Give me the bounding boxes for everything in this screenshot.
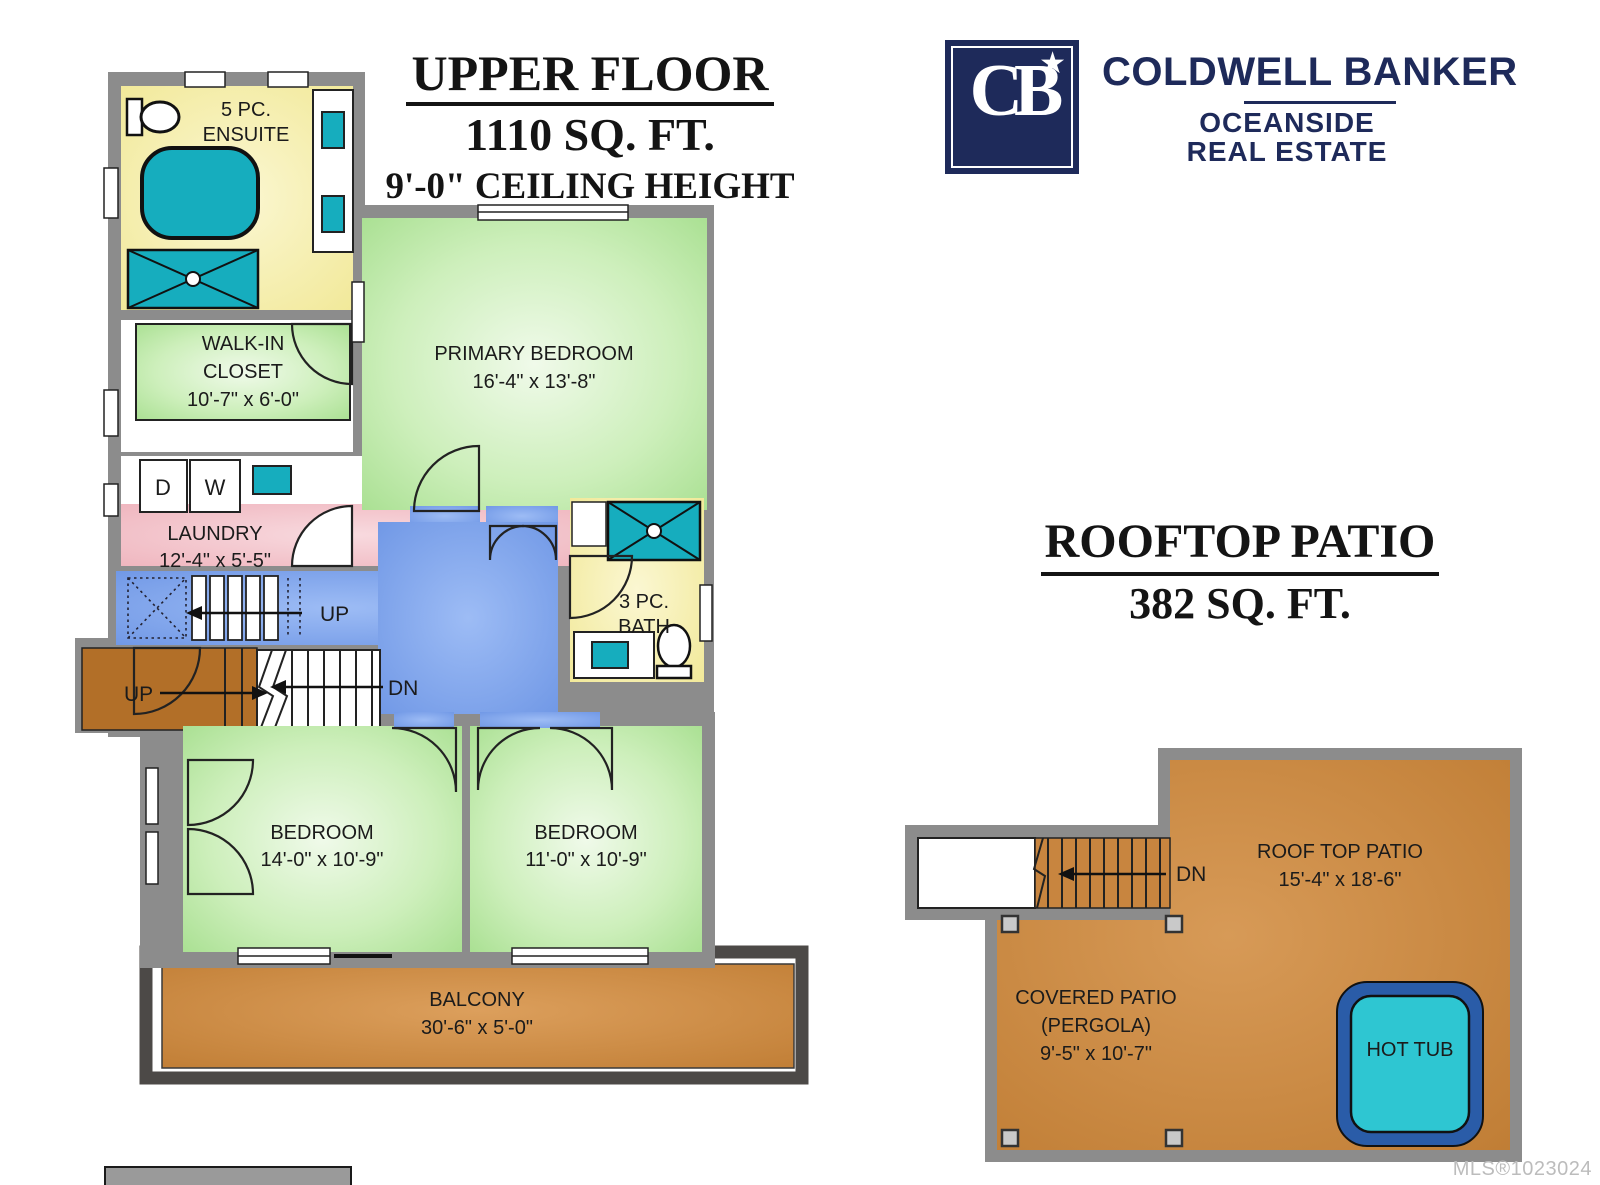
floor-plan-page: 5 PC. ENSUITE WALK-IN CLOSET 10'-7" x 6'…: [0, 0, 1600, 1185]
rooftop-patio-dim: 15'-4" x 18'-6": [1278, 869, 1401, 891]
walkin-dim: 10'-7" x 6'-0": [187, 389, 299, 411]
balcony-deck: [162, 964, 794, 1068]
stairs-up-label: UP: [320, 603, 349, 626]
covered-patio-dim: 9'-5" x 10'-7": [1040, 1043, 1152, 1065]
hot-tub: [1337, 982, 1483, 1146]
rooftop-title-block: ROOFTOP PATIO 382 SQ. FT.: [1010, 518, 1470, 626]
bath-niche: [572, 502, 606, 546]
balcony-dim: 30'-6" x 5'-0": [421, 1017, 533, 1039]
bedroom2-door-gap: [480, 712, 600, 728]
upper-floor-title-block: UPPER FLOOR 1110 SQ. FT. 9'-0" CEILING H…: [330, 48, 850, 205]
toilet-bowl-icon: [141, 102, 179, 132]
star-icon: ★: [1039, 46, 1066, 81]
ensuite-label: 5 PC.: [221, 99, 271, 121]
bedroom1-door-gap: [394, 712, 454, 728]
bath-label: 3 PC.: [619, 591, 669, 613]
bath-sink: [592, 642, 628, 668]
brand-name: COLDWELL BANKER: [1102, 50, 1562, 95]
bath-label-2: BATH: [618, 616, 670, 638]
upper-floor-area: 1110 SQ. FT.: [330, 112, 850, 158]
brand-text-block: COLDWELL BANKER OCEANSIDE REAL ESTATE: [1102, 50, 1562, 167]
balcony-label: BALCONY: [429, 989, 525, 1011]
laundry-dim: 12'-4" x 5'-5": [159, 550, 271, 572]
bath-toilet-base: [657, 666, 691, 678]
brand-divider: [1244, 101, 1396, 104]
rooftop-title-text: ROOFTOP PATIO: [1041, 518, 1440, 576]
walkin-label-2: CLOSET: [203, 361, 283, 383]
stairs-dn-label: DN: [388, 677, 418, 700]
bedroom1-label: BEDROOM: [270, 822, 373, 844]
rooftop-stairs: [918, 838, 1170, 908]
brand-sub1: OCEANSIDE: [1102, 108, 1472, 137]
bedroom2-label: BEDROOM: [534, 822, 637, 844]
rooftop-stairwell: [918, 838, 1035, 908]
shower-icon: [128, 250, 258, 308]
coldwell-banker-logo: CB ★: [945, 40, 1079, 174]
washer-label: W: [205, 475, 226, 500]
primary-bedroom-label: PRIMARY BEDROOM: [434, 343, 633, 365]
upper-floor-title: UPPER FLOOR: [406, 48, 775, 106]
stair-landing: [82, 648, 257, 730]
rooftop-patio-label: ROOF TOP PATIO: [1257, 841, 1423, 863]
dryer-label: D: [155, 475, 171, 500]
covered-patio-label: COVERED PATIO: [1015, 987, 1177, 1009]
covered-patio-label-2: (PERGOLA): [1041, 1015, 1151, 1037]
bedroom2-dim: 11'-0" x 10'-9": [525, 849, 647, 871]
rooftop-patio-plan: ROOF TOP PATIO 15'-4" x 18'-6" DN COVERE…: [905, 748, 1522, 1162]
bedroom1-dim: 14'-0" x 10'-9": [260, 849, 383, 871]
rooftop-area: 382 SQ. FT.: [1010, 582, 1470, 626]
primary-bedroom-dim: 16'-4" x 13'-8": [472, 371, 595, 393]
upper-floor-ceiling: 9'-0" CEILING HEIGHT: [330, 168, 850, 205]
bathtub-icon: [142, 148, 258, 238]
landing-up-label: UP: [124, 683, 153, 706]
lower-floor-cutoff-bar: [104, 1166, 352, 1185]
upper-floor-plan: 5 PC. ENSUITE WALK-IN CLOSET 10'-7" x 6'…: [75, 72, 802, 1078]
brand-sub2: REAL ESTATE: [1102, 137, 1472, 166]
room-bath: [570, 498, 704, 682]
hot-tub-label: HOT TUB: [1366, 1039, 1453, 1061]
laundry-sink: [253, 466, 291, 494]
laundry-label: LAUNDRY: [167, 523, 262, 545]
walkin-label: WALK-IN: [202, 333, 285, 355]
bath-shower-icon: [608, 502, 700, 560]
rooftop-dn-label: DN: [1176, 863, 1206, 886]
mls-number: MLS®1023024: [1400, 1158, 1592, 1181]
ensuite-label-2: ENSUITE: [203, 124, 290, 146]
